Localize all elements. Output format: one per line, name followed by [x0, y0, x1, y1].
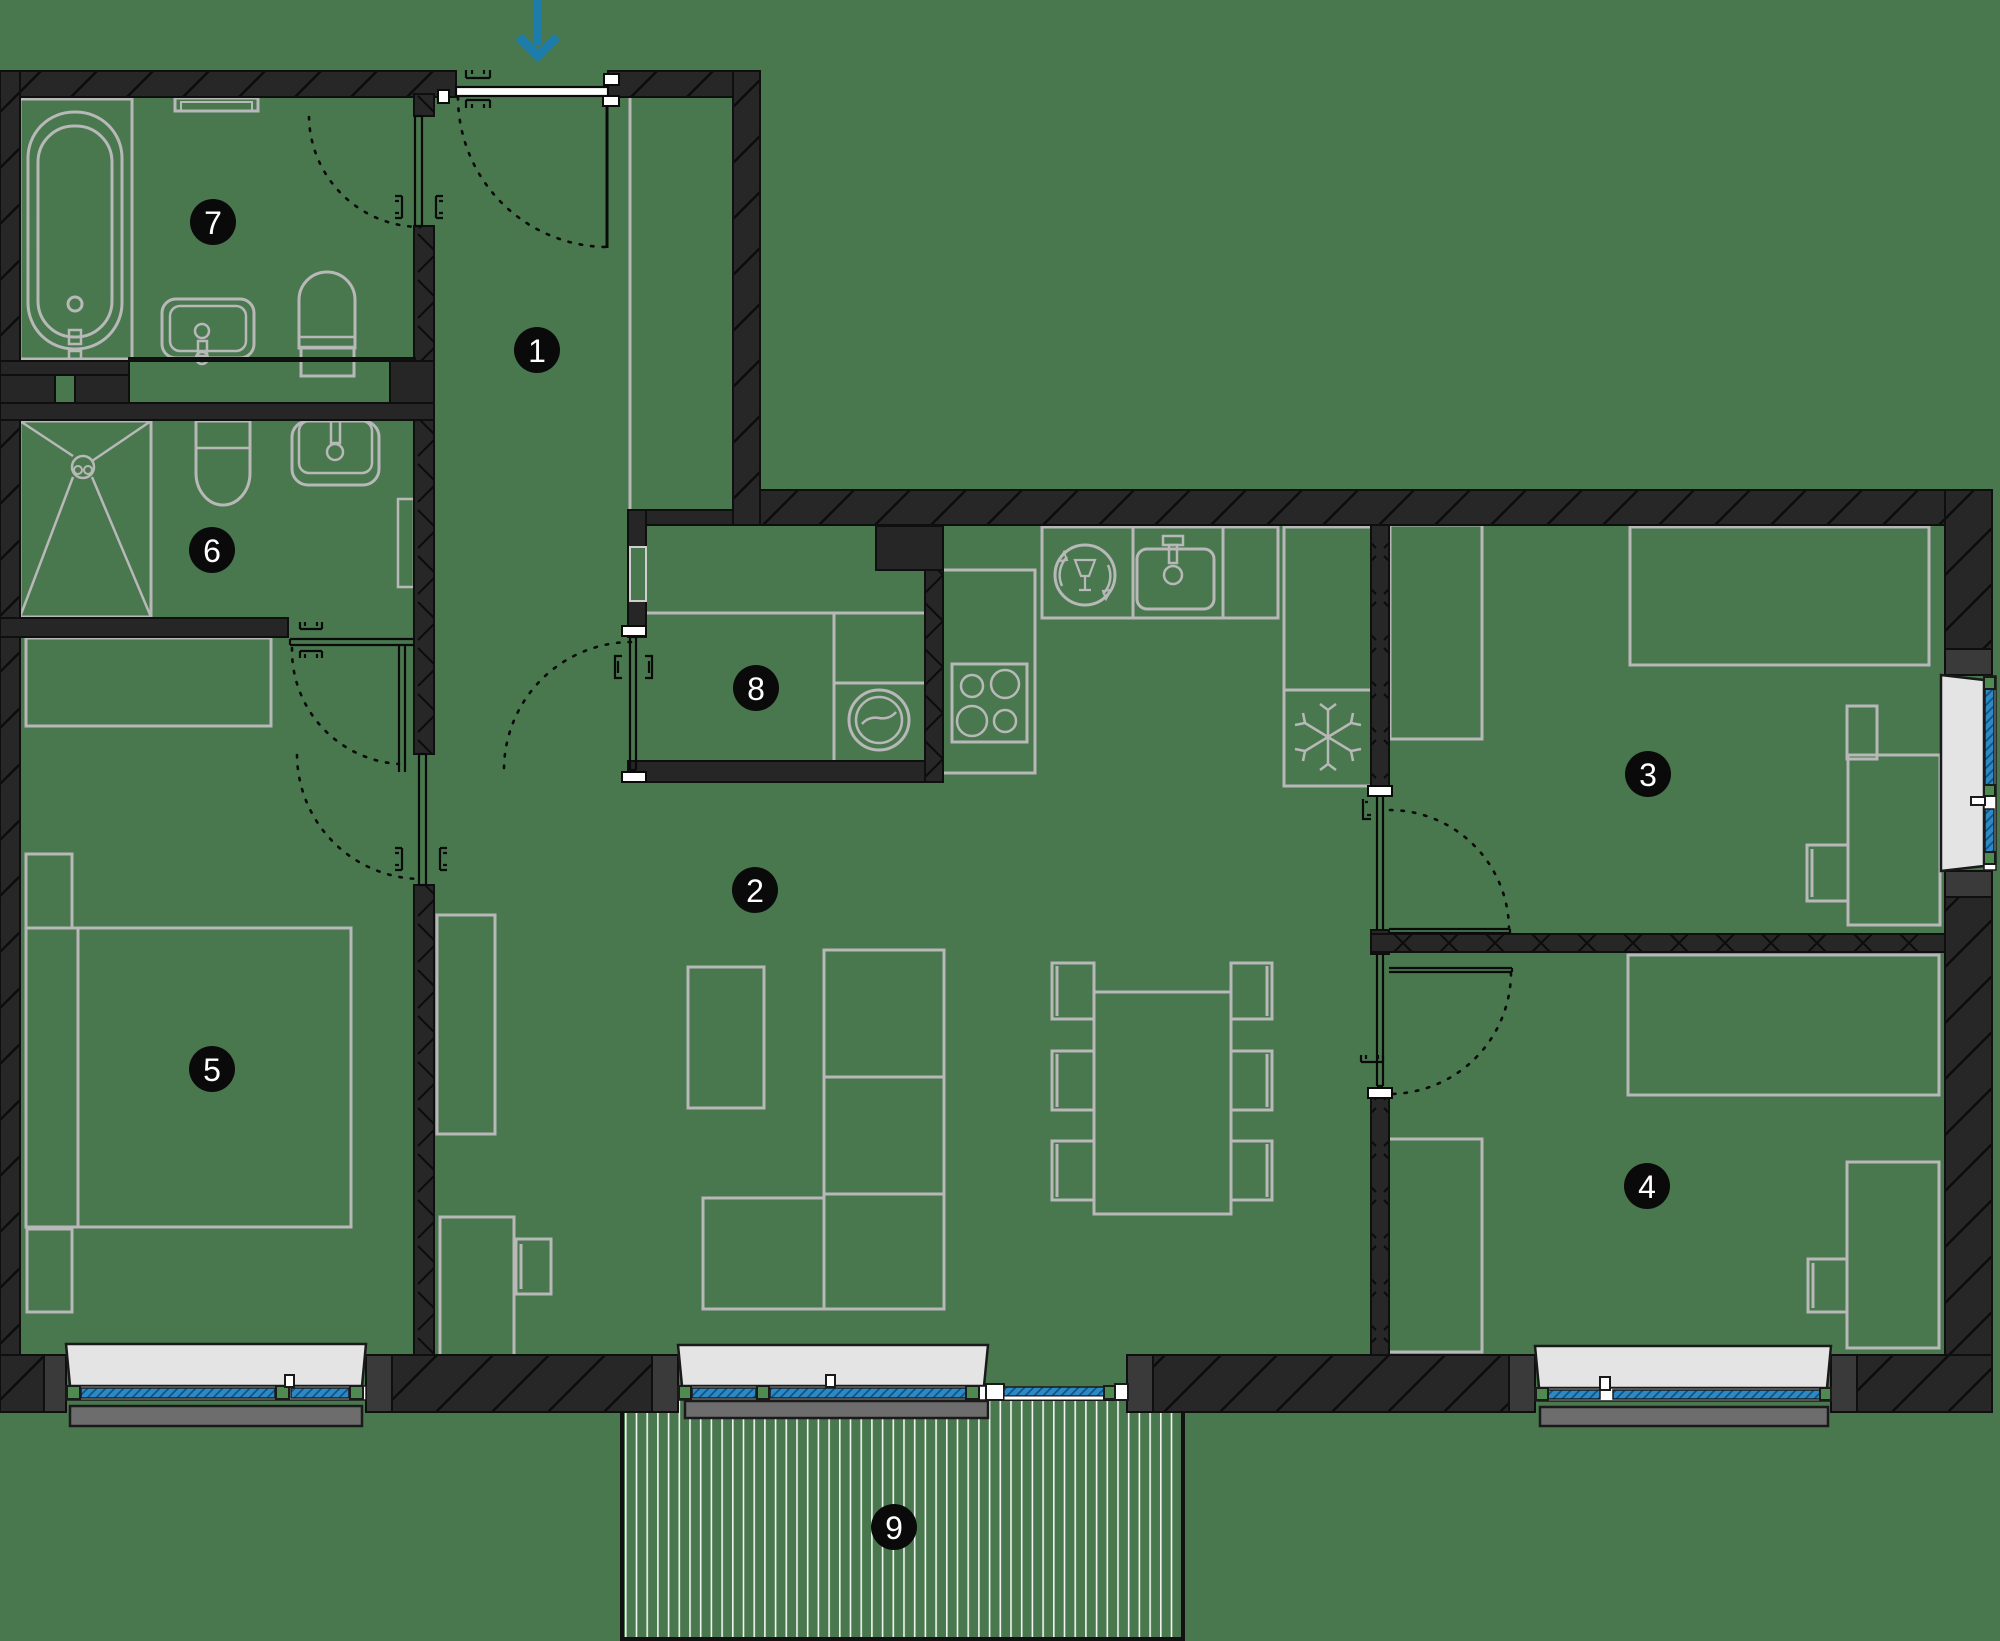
svg-text:2: 2	[746, 873, 764, 909]
svg-text:8: 8	[747, 671, 765, 707]
svg-text:3: 3	[1639, 757, 1657, 793]
svg-text:6: 6	[203, 533, 221, 569]
svg-text:1: 1	[528, 333, 546, 369]
svg-text:9: 9	[885, 1510, 903, 1546]
svg-text:5: 5	[203, 1052, 221, 1088]
svg-text:7: 7	[204, 205, 222, 241]
svg-text:4: 4	[1638, 1169, 1656, 1205]
